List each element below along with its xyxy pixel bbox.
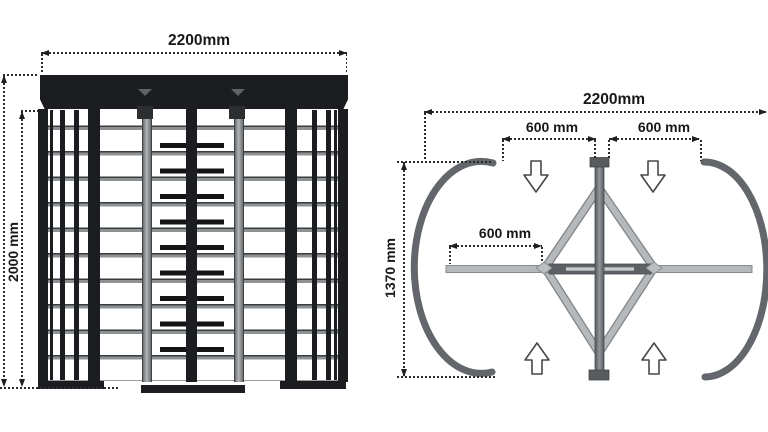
dimension-line bbox=[449, 245, 542, 247]
extension-line bbox=[502, 140, 504, 161]
dimension-arrow bbox=[692, 136, 700, 142]
dimension-arrow bbox=[401, 162, 407, 170]
left-passage-label: 600 mm bbox=[512, 119, 592, 135]
extension-line bbox=[541, 247, 543, 263]
down-arrow-icon bbox=[524, 161, 548, 192]
center-post-bottom-cap bbox=[589, 370, 609, 380]
down-arrow-icon bbox=[641, 161, 665, 192]
center-partition-post bbox=[595, 165, 604, 373]
extension-line bbox=[424, 113, 426, 161]
dimension-line bbox=[424, 111, 768, 113]
up-arrow-icon bbox=[525, 343, 549, 374]
up-arrow-icon bbox=[642, 343, 666, 374]
dimension-arrow bbox=[609, 136, 617, 142]
plan-width-label: 2200mm bbox=[569, 92, 659, 108]
extension-line bbox=[700, 140, 702, 161]
dimension-line bbox=[403, 162, 405, 377]
center-post-top-cap bbox=[590, 158, 609, 168]
plan-view-graphic bbox=[0, 0, 768, 432]
extension-line bbox=[397, 376, 495, 378]
right-passage-label: 600 mm bbox=[624, 119, 704, 135]
extension-line bbox=[594, 140, 596, 158]
dimension-line bbox=[502, 138, 596, 140]
turnstile-dimension-diagram: 2200mm 2000 mm bbox=[0, 0, 768, 432]
wing-length-label: 600 mm bbox=[465, 225, 545, 241]
extension-line bbox=[449, 247, 451, 264]
extension-line bbox=[608, 140, 610, 158]
dimension-line bbox=[609, 138, 700, 140]
extension-line bbox=[397, 161, 492, 163]
dimension-arrow bbox=[759, 109, 767, 115]
depth-label: 1370 mm bbox=[382, 223, 398, 313]
